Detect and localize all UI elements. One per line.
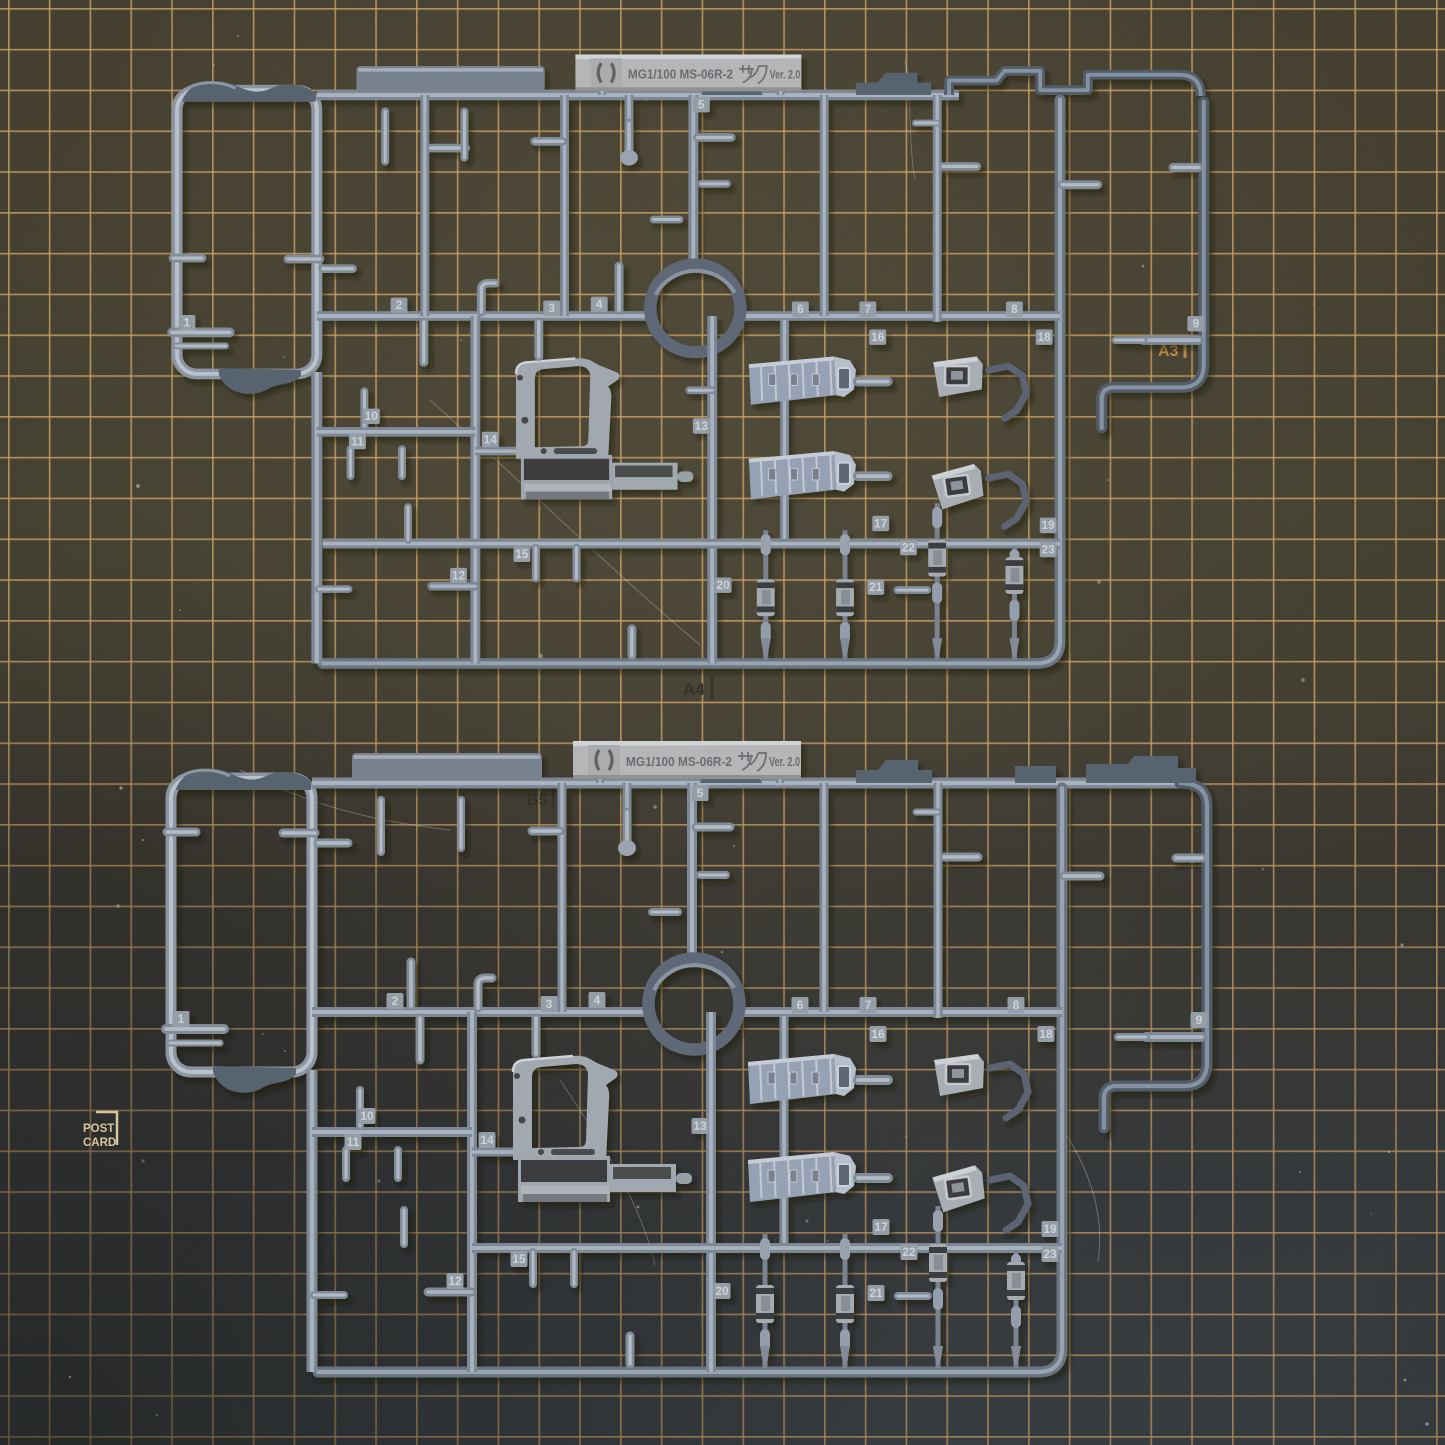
svg-text:A4: A4 (683, 680, 705, 699)
svg-text:16: 16 (871, 1027, 885, 1041)
svg-text:12: 12 (452, 570, 466, 583)
svg-text:1: 1 (178, 1012, 185, 1026)
svg-text:B5: B5 (527, 792, 548, 809)
svg-text:18: 18 (1039, 1027, 1053, 1041)
svg-text:4: 4 (594, 993, 601, 1007)
svg-text:22: 22 (902, 542, 916, 555)
svg-text:23: 23 (1042, 544, 1056, 557)
svg-text:Ver. 2.0: Ver. 2.0 (769, 755, 800, 769)
svg-text:14: 14 (484, 433, 498, 446)
svg-text:14: 14 (480, 1133, 494, 1147)
svg-text:2: 2 (396, 299, 403, 312)
svg-text:3: 3 (546, 997, 553, 1011)
svg-text:4: 4 (596, 298, 603, 311)
svg-text:11: 11 (347, 1135, 360, 1149)
svg-text:8: 8 (1013, 998, 1020, 1012)
svg-text:12: 12 (448, 1274, 462, 1288)
svg-text:8: 8 (1011, 303, 1018, 316)
svg-text:15: 15 (515, 548, 529, 561)
svg-text:Ver. 2.0: Ver. 2.0 (770, 68, 801, 82)
svg-text:7: 7 (865, 998, 872, 1012)
svg-text:MG1/100 MS-06R-2: MG1/100 MS-06R-2 (626, 754, 732, 769)
svg-text:22: 22 (902, 1245, 916, 1259)
svg-text:17: 17 (874, 517, 887, 530)
svg-text:A3: A3 (1158, 343, 1179, 360)
svg-text:10: 10 (365, 410, 379, 423)
svg-text:7: 7 (864, 303, 871, 316)
svg-text:6: 6 (797, 303, 804, 316)
svg-text:19: 19 (1042, 519, 1056, 532)
svg-text:10: 10 (360, 1109, 374, 1123)
svg-text:16: 16 (871, 331, 885, 344)
svg-text:MG1/100 MS-06R-2: MG1/100 MS-06R-2 (628, 67, 733, 82)
svg-text:18: 18 (1038, 331, 1052, 344)
svg-text:21: 21 (869, 1286, 883, 1300)
svg-text:CARD: CARD (83, 1137, 116, 1149)
svg-text:13: 13 (695, 420, 709, 433)
svg-text:20: 20 (715, 1284, 729, 1298)
svg-text:9: 9 (1193, 318, 1200, 331)
svg-text:6: 6 (797, 998, 804, 1012)
svg-text:15: 15 (512, 1252, 526, 1266)
svg-text:20: 20 (716, 579, 730, 592)
svg-text:2: 2 (392, 994, 399, 1008)
svg-text:23: 23 (1043, 1247, 1057, 1261)
svg-text:13: 13 (693, 1119, 707, 1133)
svg-text:9: 9 (1196, 1013, 1203, 1027)
svg-text:POST: POST (83, 1123, 114, 1135)
svg-text:11: 11 (351, 435, 364, 448)
svg-text:19: 19 (1043, 1222, 1057, 1236)
svg-text:21: 21 (869, 581, 883, 594)
svg-text:5: 5 (697, 786, 704, 800)
svg-text:1: 1 (184, 317, 191, 330)
svg-text:3: 3 (548, 302, 555, 315)
svg-text:17: 17 (874, 1220, 888, 1234)
svg-text:5: 5 (698, 99, 705, 112)
